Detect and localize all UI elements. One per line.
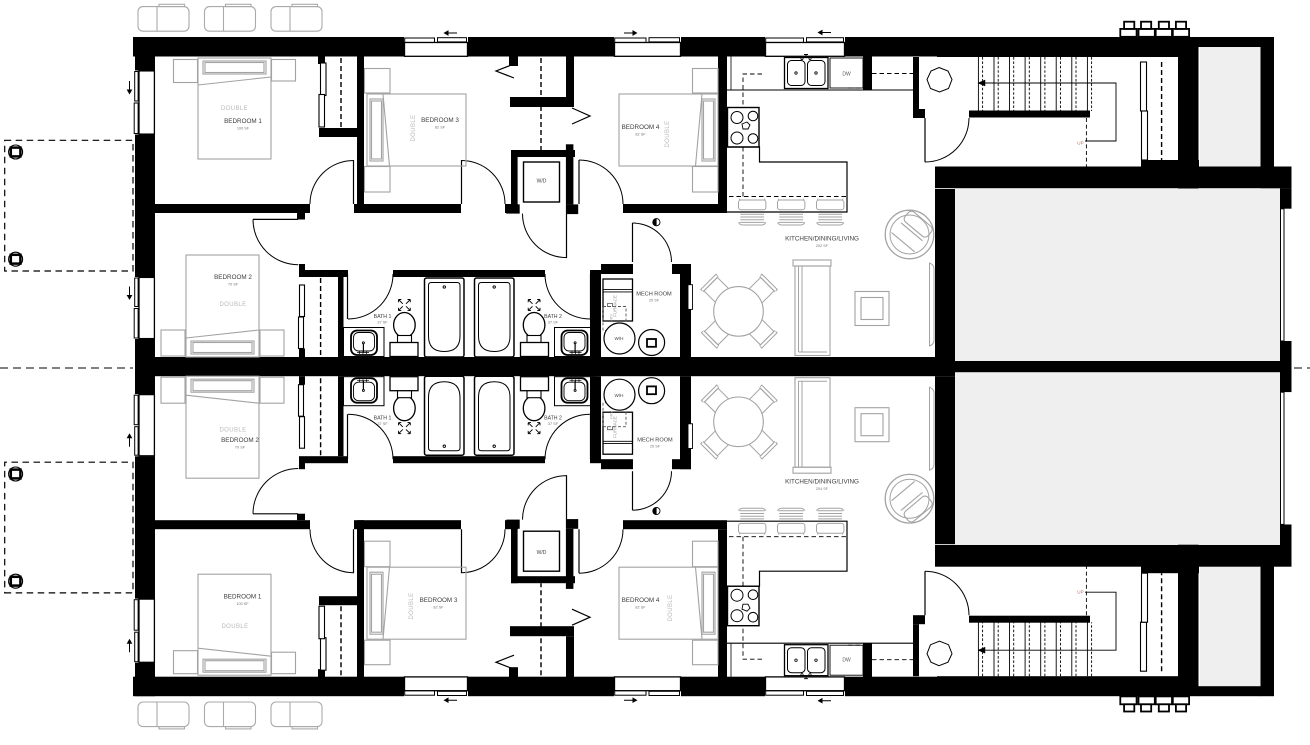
svg-text:DOUBLE: DOUBLE [221,624,248,630]
svg-text:BEDROOM 3: BEDROOM 3 [420,597,458,604]
svg-text:202 SF: 202 SF [816,244,829,248]
svg-text:100 SF: 100 SF [236,602,249,606]
svg-text:W/H: W/H [615,336,624,341]
svg-text:DOUBLE: DOUBLE [411,114,417,141]
svg-text:DW: DW [842,72,851,78]
svg-text:BATH 1: BATH 1 [374,314,392,320]
svg-text:BEDROOM 1: BEDROOM 1 [224,594,262,601]
svg-text:100 SF: 100 SF [237,127,250,131]
svg-text:70 SF: 70 SF [235,446,246,450]
svg-text:DOUBLE: DOUBLE [665,120,671,147]
svg-text:DOUBLE: DOUBLE [221,106,248,112]
svg-text:DOUBLE: DOUBLE [409,592,415,619]
svg-text:MECH ROOM: MECH ROOM [636,292,672,298]
svg-text:DOUBLE: DOUBLE [219,428,246,434]
svg-text:BATH 1: BATH 1 [374,416,392,422]
svg-text:KITCHEN/DINING/LIVING: KITCHEN/DINING/LIVING [785,236,859,243]
svg-text:BEDROOM 4: BEDROOM 4 [622,124,660,131]
svg-text:82 SF: 82 SF [433,606,444,610]
svg-text:82 SF: 82 SF [435,126,446,130]
svg-text:DOUBLE: DOUBLE [668,594,674,621]
svg-text:37 SF: 37 SF [377,422,388,426]
svg-text:82 SF: 82 SF [635,606,646,610]
svg-text:UP: UP [1077,590,1083,595]
svg-text:37 SF: 37 SF [548,422,559,426]
svg-text:UP: UP [1077,141,1083,146]
svg-text:MECH ROOM: MECH ROOM [637,438,673,444]
svg-text:KITCHEN/DINING/LIVING: KITCHEN/DINING/LIVING [785,479,859,486]
svg-text:BEDROOM 4: BEDROOM 4 [622,597,660,604]
svg-text:37 SF: 37 SF [377,321,388,325]
svg-text:HRV: HRV [609,410,614,419]
svg-text:70 SF: 70 SF [228,283,239,287]
svg-text:W/D: W/D [537,550,547,556]
svg-text:HRV: HRV [609,313,614,322]
svg-text:37 SF: 37 SF [548,321,559,325]
svg-text:BEDROOM 3: BEDROOM 3 [421,117,459,124]
svg-text:DOUBLE: DOUBLE [219,302,246,308]
svg-text:BATH 2: BATH 2 [544,416,562,422]
svg-text:BEDROOM 2: BEDROOM 2 [214,274,252,281]
svg-text:W/H: W/H [615,393,624,398]
svg-text:204 SF: 204 SF [816,487,829,491]
svg-text:BATH 2: BATH 2 [544,314,562,320]
svg-text:25 SF: 25 SF [650,445,661,449]
svg-text:DW: DW [842,658,851,664]
svg-text:W/D: W/D [537,179,547,185]
svg-text:25 SF: 25 SF [649,299,660,303]
svg-text:BEDROOM 1: BEDROOM 1 [224,118,262,125]
svg-text:FURNACE: FURNACE [613,295,618,317]
svg-text:BEDROOM 2: BEDROOM 2 [221,437,259,444]
svg-text:82 SF: 82 SF [635,133,646,137]
